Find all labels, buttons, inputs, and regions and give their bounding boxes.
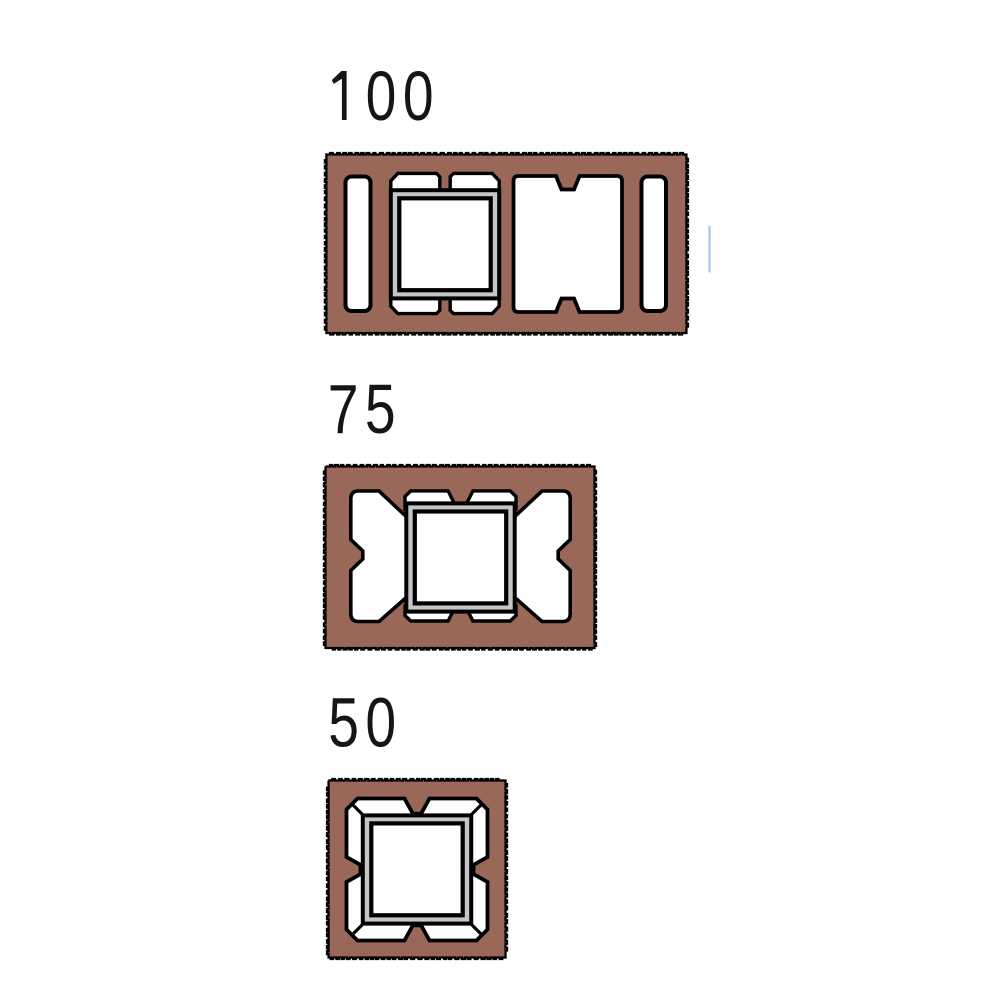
svg-text:50: 50 <box>328 684 402 762</box>
svg-text:75: 75 <box>328 371 402 449</box>
svg-text:00: 00 <box>366 58 440 136</box>
